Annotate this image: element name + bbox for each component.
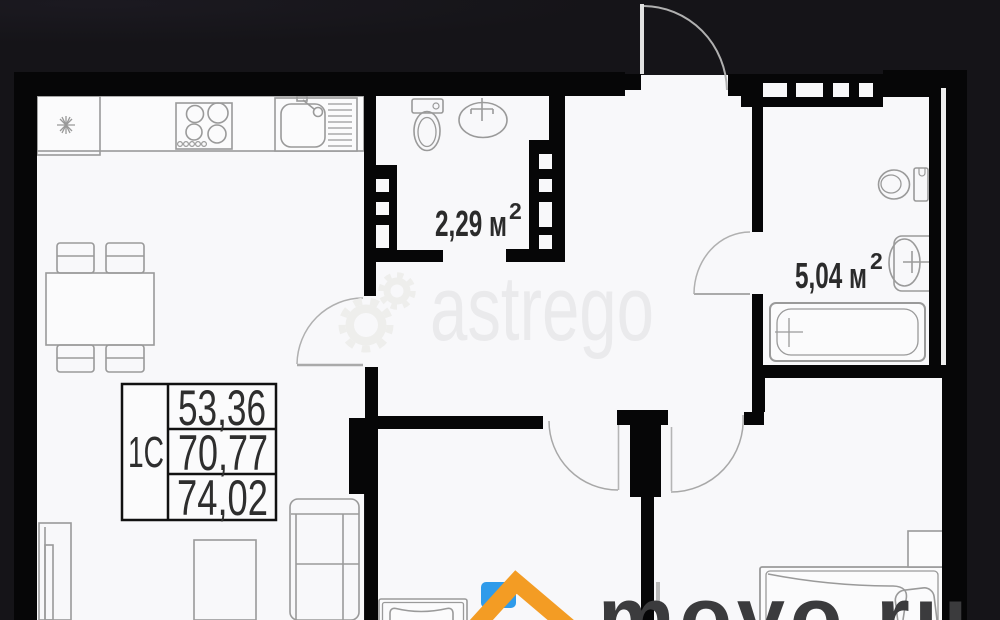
svg-text:5,04 м: 5,04 м <box>795 255 867 296</box>
svg-text:astrego: astrego <box>430 258 654 360</box>
svg-text:2,29 м: 2,29 м <box>435 203 507 244</box>
svg-text:movo.ru: movo.ru <box>598 570 972 620</box>
svg-text:2: 2 <box>509 198 522 224</box>
svg-text:2: 2 <box>870 248 883 274</box>
svg-text:1С: 1С <box>128 428 164 477</box>
svg-text:74,02: 74,02 <box>177 470 268 526</box>
